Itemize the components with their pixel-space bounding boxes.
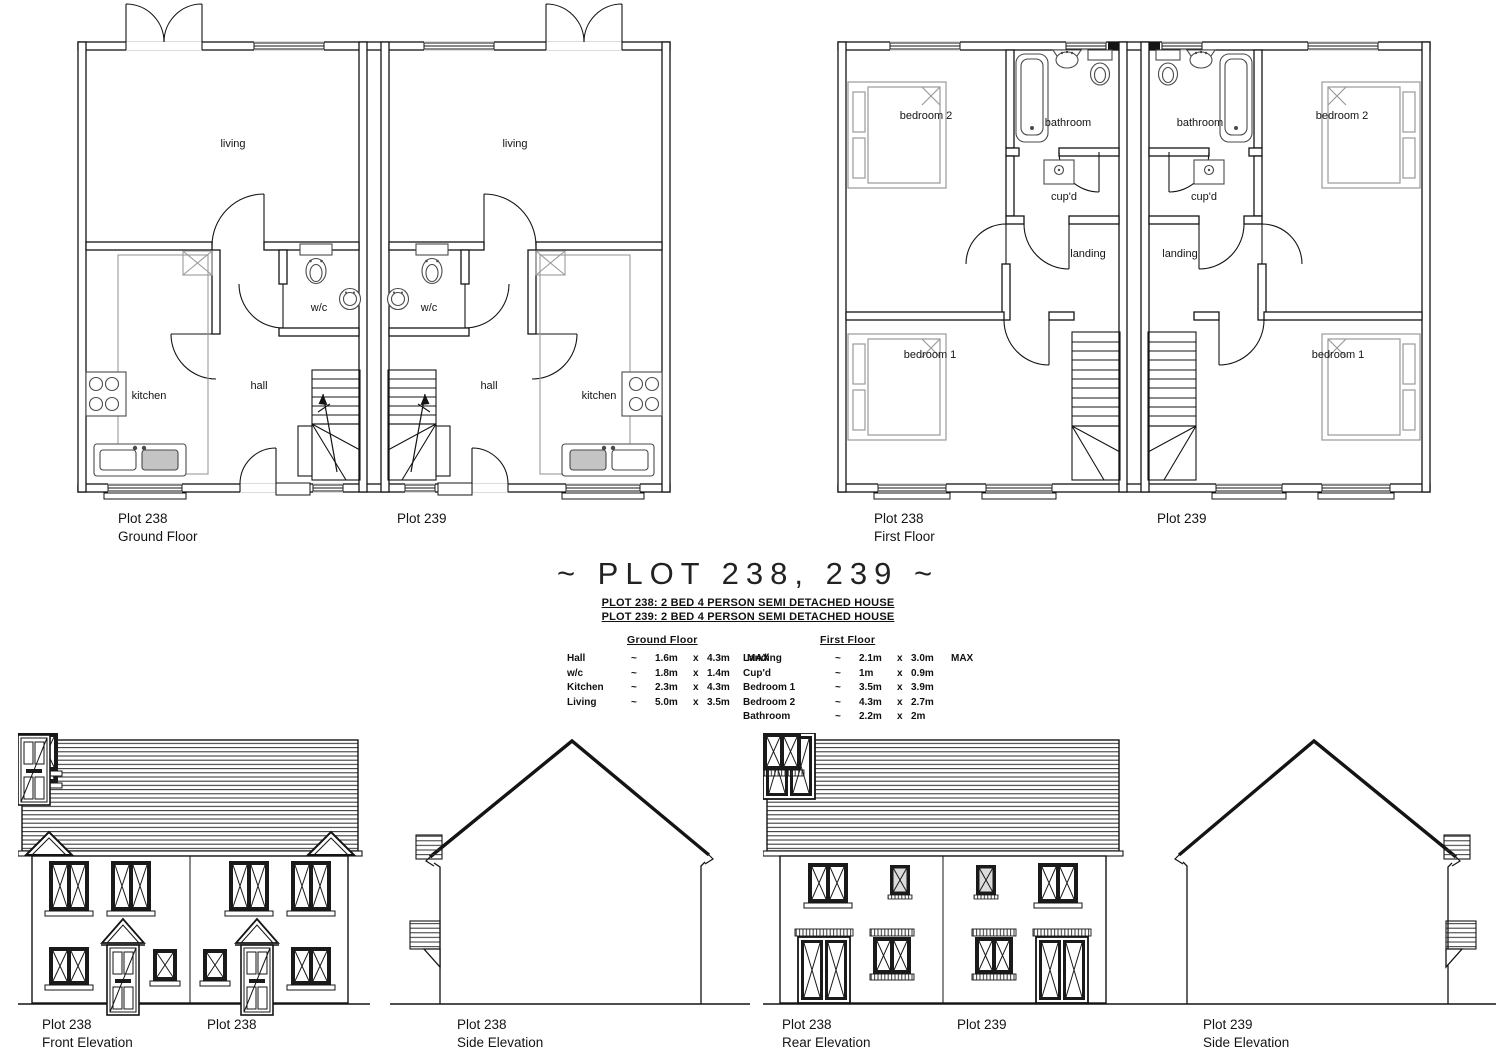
first-floor-captions: Plot 238 First Floor Plot 239	[874, 511, 1207, 544]
bedroom2-wall	[966, 224, 1010, 320]
bedroom2-window-symbol	[890, 42, 960, 51]
room-label-living: living	[220, 138, 245, 150]
side-wall	[1183, 862, 1452, 1004]
first-floor-plan-drawing: bedroom 2 bedroom 2 bathroom bathroom cu…	[834, 2, 1454, 547]
upper-window-symbol	[225, 861, 273, 916]
caption-elevation-name: Front Elevation	[42, 1035, 133, 1050]
ground-floor-plan-drawing: living living w/c w/c hall hall kitchen …	[74, 2, 694, 547]
roof-tiles	[767, 740, 1119, 851]
front-elevation-drawing: Plot 238 Front Elevation Plot 238	[18, 733, 370, 1055]
kitchen-window-symbol	[104, 484, 186, 500]
bath-icon	[1016, 54, 1048, 142]
room-label-wc: w/c	[420, 302, 438, 314]
room-label-hall: hall	[250, 380, 267, 392]
spec-header-first-floor: First Floor	[820, 634, 875, 646]
eaves-fascia	[763, 851, 1123, 856]
room-label-landing: landing	[1070, 248, 1105, 260]
rear-upper-window-symbol	[804, 863, 852, 908]
small-window-symbol	[150, 949, 180, 986]
kitchen-divider-wall	[171, 250, 220, 379]
lower-window-symbol	[287, 947, 335, 990]
plot-239-description: PLOT 239: 2 BED 4 PERSON SEMI DETACHED H…	[0, 611, 1496, 623]
rear-lower-window-symbol	[763, 733, 804, 776]
room-label-cupd: cup'd	[1191, 191, 1217, 203]
upper-window-symbol	[45, 861, 93, 916]
caption-plot: Plot 238	[42, 1017, 92, 1032]
table-row: Bedroom 2~ 4.3mx 2.7m	[743, 697, 983, 712]
porch-roof-side	[1444, 835, 1470, 859]
roof-line	[1179, 741, 1456, 857]
first-floor-left-house	[846, 42, 1120, 500]
cupboard-tank-icon	[1044, 160, 1074, 184]
front-door-with-porch	[18, 733, 56, 805]
caption-first-floor: First Floor	[874, 529, 935, 544]
room-label-bedroom1: bedroom 1	[1312, 349, 1365, 361]
hob-icon	[86, 372, 126, 416]
architectural-drawing-sheet: { "title": { "text": "~ PLOT 238, 239 ~"…	[0, 0, 1496, 1056]
caption-plot: Plot 238	[457, 1017, 507, 1032]
room-label-cupd: cup'd	[1051, 191, 1077, 203]
table-row: Landing~ 2.1mx 3.0mMAX	[743, 653, 983, 668]
caption-plot-239: Plot 239	[397, 511, 447, 526]
ground-floor-right-house-mirror	[388, 4, 663, 499]
living-window-symbol	[254, 42, 324, 51]
room-label-bedroom1: bedroom 1	[904, 349, 957, 361]
caption-plot-239: Plot 239	[1157, 511, 1207, 526]
kitchen-counter	[118, 255, 208, 474]
table-row: Bathroom~ 2.2mx 2m	[743, 711, 983, 726]
ground-floor-outer-walls	[78, 42, 670, 492]
basin-icon	[340, 289, 361, 310]
first-floor-right-house-mirror	[1148, 42, 1422, 500]
plot-238-description: PLOT 238: 2 BED 4 PERSON SEMI DETACHED H…	[0, 597, 1496, 609]
caption-plot: Plot 239	[1203, 1017, 1253, 1032]
spec-table-first-floor: Landing~ 2.1mx 3.0mMAX Cup'd~ 1mx 0.9m B…	[743, 653, 983, 726]
wall-pier	[1108, 42, 1119, 50]
roof-tiles	[22, 740, 358, 851]
party-wall	[1119, 42, 1149, 492]
bathroom-basin-icon	[1053, 50, 1081, 68]
living-wall	[86, 194, 359, 250]
upper-window-symbol	[107, 861, 155, 916]
ground-floor-left-house	[86, 4, 361, 499]
rear-elevation-drawing: Plot 238 Rear Elevation Plot 239	[763, 733, 1138, 1055]
first-floor-room-labels: bedroom 2 bedroom 2 bathroom bathroom cu…	[900, 110, 1369, 361]
fascia-ends	[1175, 855, 1460, 866]
side-wall	[434, 862, 705, 1004]
caption-ground-floor: Ground Floor	[118, 529, 198, 544]
room-label-kitchen: kitchen	[582, 390, 617, 402]
bathroom-window-symbol	[1066, 42, 1119, 51]
room-label-bathroom: bathroom	[1045, 117, 1091, 129]
caption-plot: Plot 238	[782, 1017, 832, 1032]
caption-plot-238: Plot 238	[874, 511, 924, 526]
room-label-bathroom: bathroom	[1177, 117, 1223, 129]
sink-icon	[94, 444, 186, 476]
bedroom1-window2-symbol	[982, 484, 1056, 500]
caption-elevation-name: Side Elevation	[1203, 1035, 1289, 1050]
room-label-living: living	[502, 138, 527, 150]
caption-plot2: Plot 239	[957, 1017, 1007, 1032]
room-label-bedroom2: bedroom 2	[900, 110, 953, 122]
french-doors-symbol	[1033, 929, 1091, 1003]
door-canopy-side	[410, 921, 440, 967]
fascia-ends	[426, 855, 713, 866]
small-window-symbol	[200, 949, 230, 986]
toilet-icon	[1088, 50, 1112, 85]
caption-elevation-name: Rear Elevation	[782, 1035, 871, 1050]
room-label-hall: hall	[480, 380, 497, 392]
table-row: Cup'd~ 1mx 0.9m	[743, 668, 983, 683]
bed-icon-bedroom2	[848, 82, 946, 188]
party-wall	[359, 42, 389, 492]
staircase	[298, 370, 360, 480]
ground-floor-room-labels: living living w/c w/c hall hall kitchen …	[132, 138, 617, 402]
staircase	[1072, 332, 1120, 480]
rear-small-window-symbol	[974, 865, 998, 899]
spec-header-ground-floor: Ground Floor	[627, 634, 698, 646]
caption-plot2: Plot 238	[207, 1017, 257, 1032]
ground-floor-captions: Plot 238 Ground Floor Plot 239	[118, 511, 447, 544]
side-elevation-238-drawing: Plot 238 Side Elevation	[390, 733, 750, 1055]
table-row: Bedroom 1~ 3.5mx 3.9m	[743, 682, 983, 697]
french-doors-symbol	[795, 929, 853, 1003]
room-label-landing: landing	[1162, 248, 1197, 260]
room-label-wc: w/c	[310, 302, 328, 314]
caption-plot-238: Plot 238	[118, 511, 168, 526]
rear-upper-window-symbol	[1034, 863, 1082, 908]
front-door-symbol	[240, 448, 310, 495]
bedroom1-window-symbol	[874, 484, 950, 500]
rear-small-window-symbol	[888, 865, 912, 899]
roof-line	[430, 741, 709, 857]
room-label-bedroom2: bedroom 2	[1316, 110, 1369, 122]
porch-roof-side	[416, 835, 442, 859]
french-doors-symbol	[126, 4, 202, 51]
toilet-icon	[300, 244, 332, 284]
room-label-kitchen: kitchen	[132, 390, 167, 402]
lower-window-symbol	[45, 947, 93, 990]
sheet-title: ~ PLOT 238, 239 ~	[0, 556, 1496, 592]
side-elevation-239-drawing: Plot 239 Side Elevation	[1138, 733, 1496, 1055]
stair-window-symbol	[313, 484, 343, 493]
caption-elevation-name: Side Elevation	[457, 1035, 543, 1050]
door-canopy-side	[1446, 921, 1476, 967]
upper-window-symbol	[287, 861, 335, 916]
